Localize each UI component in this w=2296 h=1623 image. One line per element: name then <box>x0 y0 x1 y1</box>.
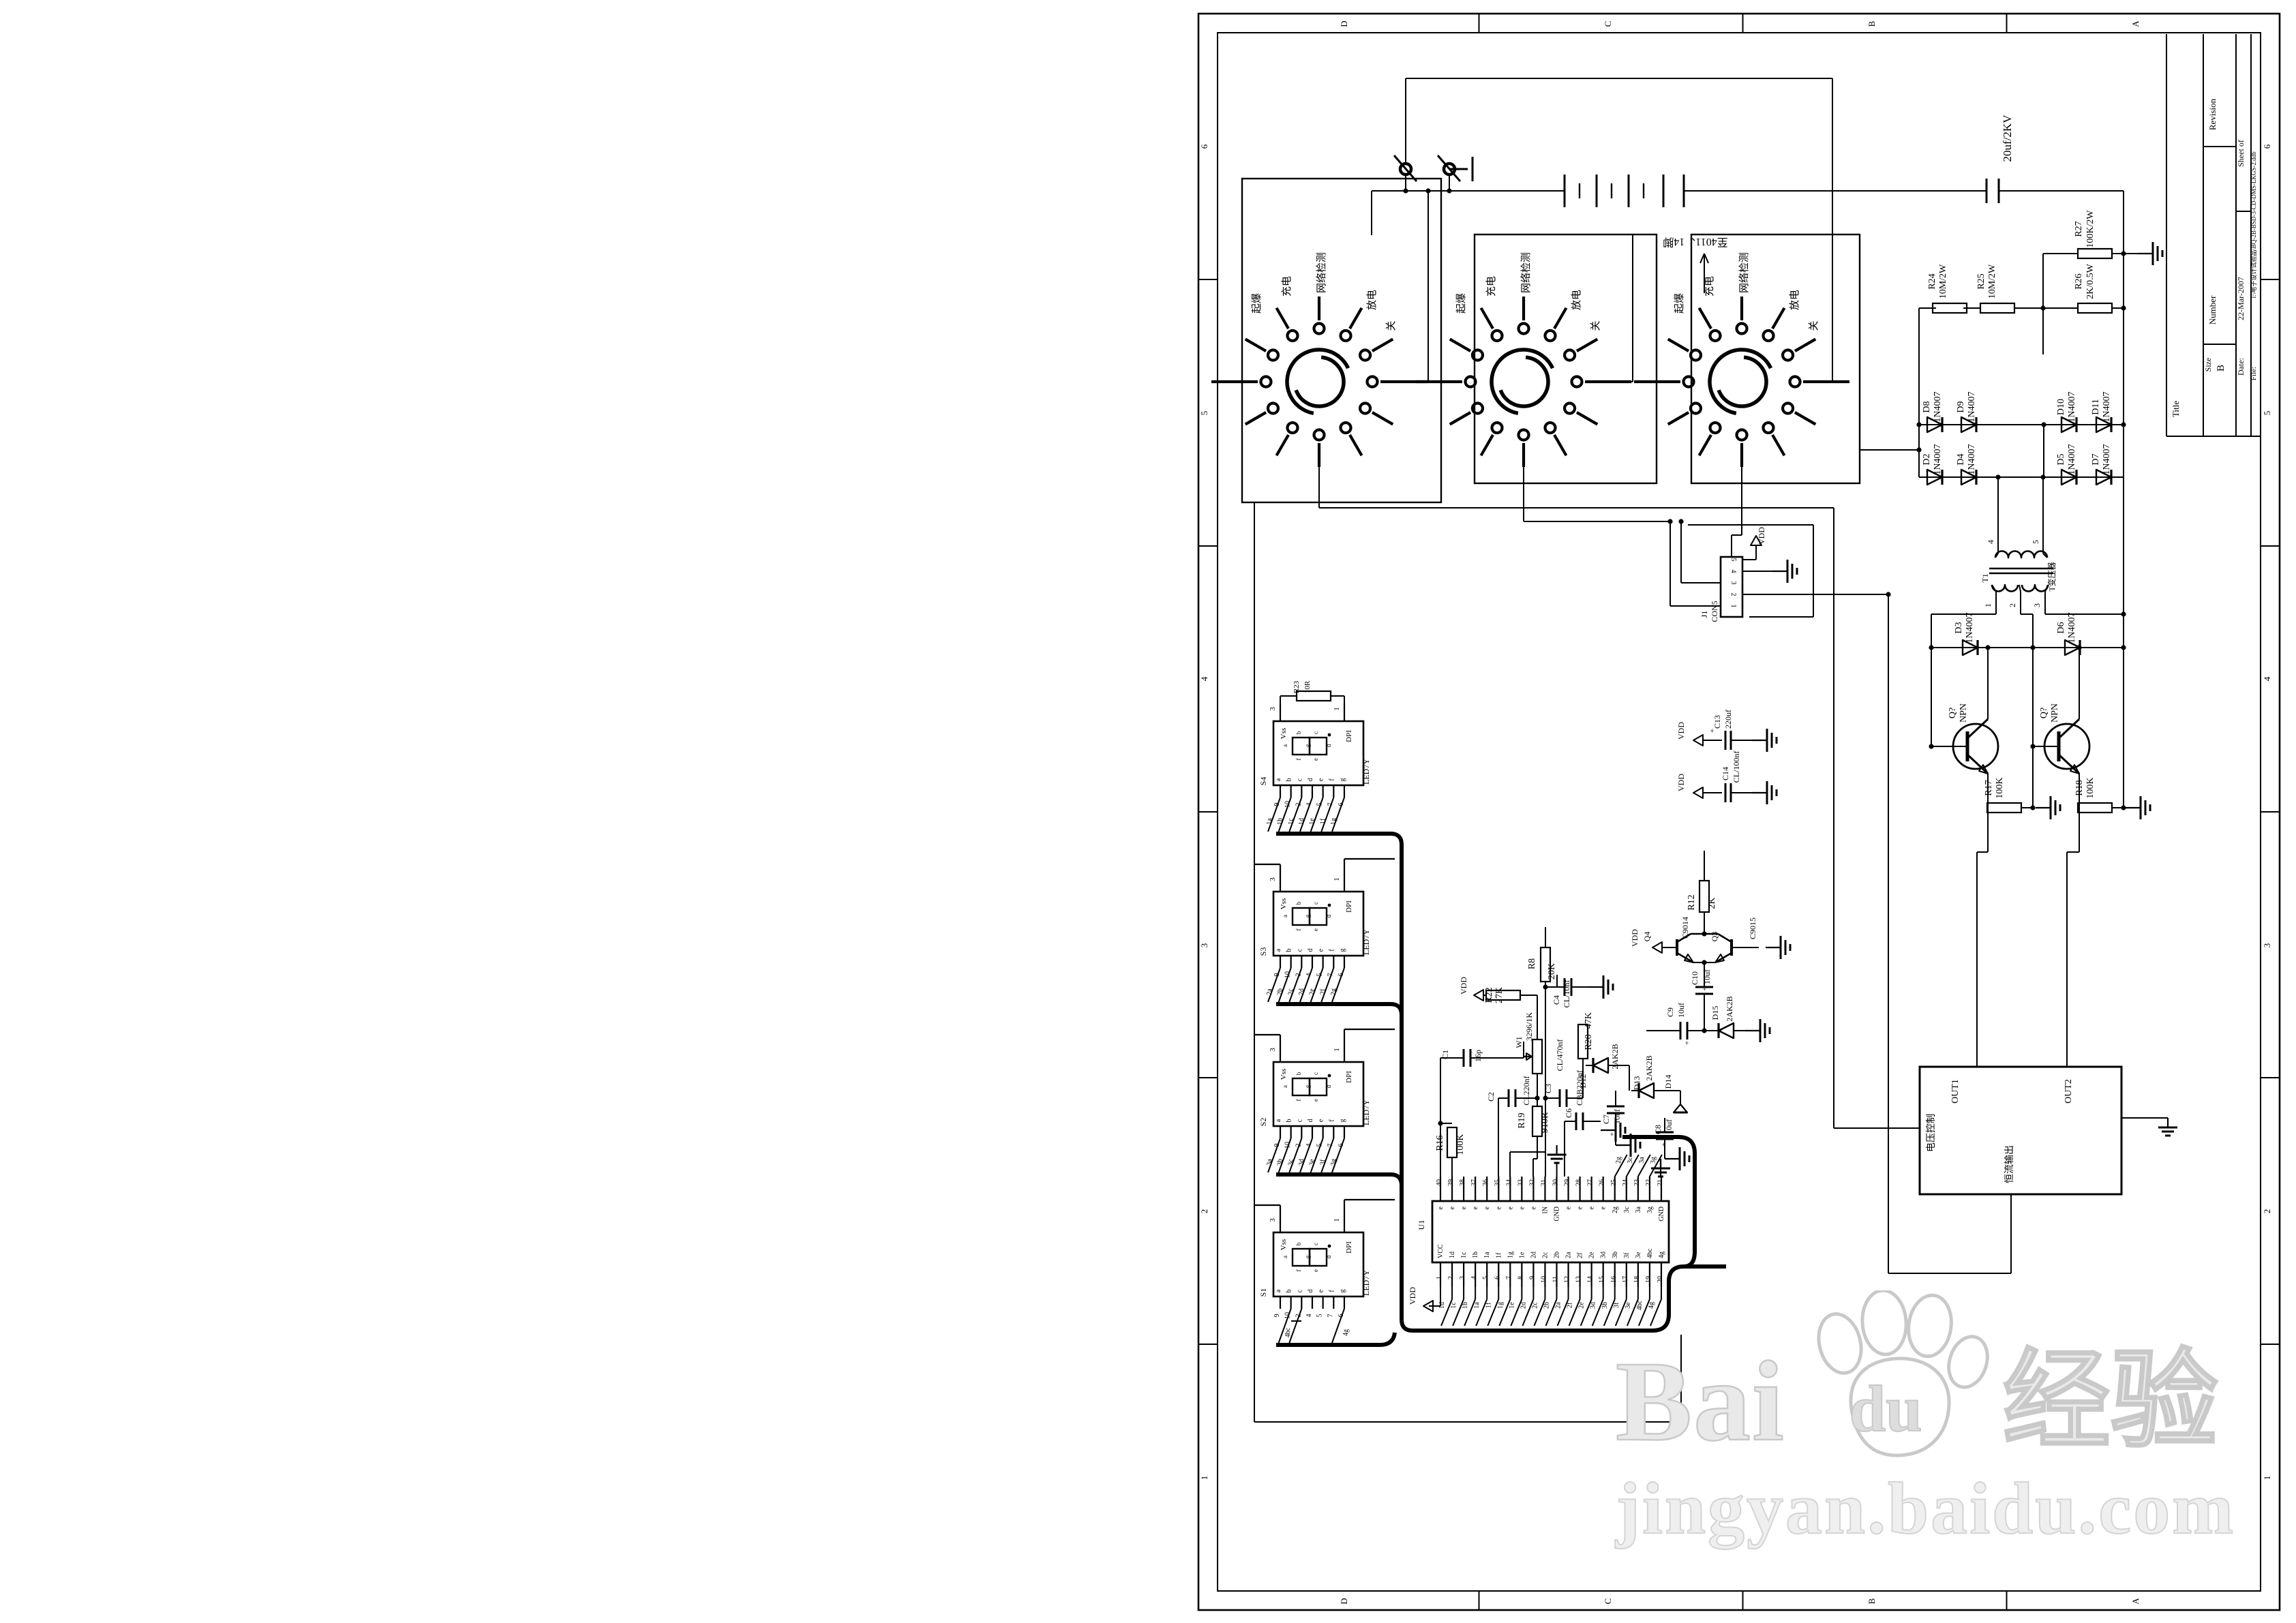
schematic-label: c <box>1312 1072 1319 1075</box>
schematic-label: + <box>1608 1132 1616 1136</box>
schematic-label: Title <box>2171 401 2181 417</box>
schematic-label: 9 <box>1273 1314 1281 1318</box>
schematic-label: D6 <box>2056 622 2066 633</box>
schematic-label: f <box>1328 1290 1335 1292</box>
schematic-label: g <box>1339 949 1346 952</box>
schematic-label: 5 <box>1482 1276 1490 1279</box>
schematic-label: 100K <box>2085 777 2096 798</box>
schematic-label: Q3 <box>1710 932 1719 942</box>
schematic-label: 6 <box>2262 144 2272 149</box>
watermark-du: du <box>1849 1371 1922 1446</box>
schematic-label: 40 <box>1436 1179 1443 1186</box>
schematic-label: C13 <box>1712 715 1722 729</box>
schematic-label: R27 <box>2074 221 2084 237</box>
schematic-label: c <box>1296 1119 1303 1122</box>
schematic-label: e <box>1472 1206 1479 1209</box>
schematic-label: e <box>1483 1206 1491 1209</box>
schematic-label: 4 <box>1305 1314 1313 1318</box>
schematic-label: D13 <box>1632 1076 1642 1091</box>
schematic-label: 1 <box>1333 707 1341 711</box>
schematic-label: 6 <box>1338 973 1345 977</box>
schematic-label: 起爆 <box>1455 293 1467 314</box>
schematic-label: 4 <box>1470 1276 1478 1279</box>
schematic-label: 3d <box>1298 1159 1305 1166</box>
watermark-cn: 经验 <box>2003 1346 2218 1459</box>
schematic-label: D14 <box>1663 1075 1673 1089</box>
schematic-label: 3f <box>1623 1252 1631 1258</box>
schematic-label: C <box>1603 21 1613 27</box>
schematic-label: VDD <box>1459 977 1468 995</box>
schematic-label: e <box>1565 1206 1573 1209</box>
schematic-label: 16 <box>1610 1276 1618 1283</box>
schematic-label: + <box>1707 728 1717 733</box>
schematic-label: 5 <box>1316 973 1324 977</box>
schematic-label: 1a <box>1473 1302 1481 1309</box>
schematic-label: a <box>1282 915 1288 917</box>
schematic-label: 1g <box>1496 1302 1504 1309</box>
schematic-label: 2 <box>2008 603 2017 607</box>
schematic-label: Number <box>2207 295 2218 324</box>
schematic-label: 8 <box>1517 1276 1524 1279</box>
schematic-label: 31 <box>1540 1179 1547 1186</box>
schematic-label: 23 <box>1633 1179 1641 1186</box>
schematic-label: LED7Y <box>1361 759 1371 785</box>
schematic-label: 1 <box>1333 1218 1341 1222</box>
schematic-label: 910R <box>1540 1112 1550 1133</box>
schematic-label: 至4011、14脚 <box>1663 236 1727 248</box>
schematic-label: U1 <box>1417 1220 1426 1230</box>
schematic-label: e <box>1318 1289 1325 1292</box>
schematic-label: VCC <box>1437 1244 1445 1258</box>
schematic-label: g <box>1304 1255 1311 1258</box>
schematic-label: 3 <box>2032 603 2042 607</box>
schematic-label: 39 <box>1447 1179 1455 1186</box>
schematic-label: LED7Y <box>1361 929 1371 955</box>
schematic-label: DPI <box>1345 1241 1353 1254</box>
schematic-label: 3e <box>1635 1252 1642 1258</box>
schematic-label: 9 <box>1528 1276 1536 1279</box>
schematic-label: D7 <box>2091 453 2101 465</box>
schematic-label: 1N4007 <box>2067 612 2077 643</box>
schematic-label: 3 <box>1269 1218 1277 1222</box>
schematic-label: NPN <box>2050 703 2060 723</box>
schematic-label: g <box>1339 1119 1346 1123</box>
schematic-label: 1 <box>1436 1276 1443 1279</box>
schematic-label: 1g <box>1507 1252 1514 1258</box>
schematic-label: C1 <box>1440 1050 1450 1059</box>
schematic-label: f <box>1295 1270 1302 1272</box>
schematic-label: 3a <box>1266 1159 1273 1166</box>
schematic-label: C14 <box>1721 767 1730 780</box>
schematic-label: d <box>1325 1084 1332 1088</box>
schematic-label: 2 <box>2262 1209 2272 1214</box>
schematic-label: e <box>1318 948 1325 952</box>
schematic-label: 3d <box>1600 1252 1607 1258</box>
schematic-label: a <box>1275 1289 1282 1292</box>
schematic-label: VDD <box>1676 722 1686 740</box>
schematic-label: D10 <box>2056 399 2066 415</box>
schematic-label: 放电 <box>1366 290 1378 310</box>
title-block <box>2166 34 2261 436</box>
schematic-label: 2K/0.5W <box>2085 263 2096 299</box>
schematic-label: 2AK2B <box>1610 1044 1620 1069</box>
schematic-label: 起爆 <box>1674 293 1685 314</box>
schematic-label: 14 <box>1587 1276 1595 1283</box>
schematic-label: + <box>1683 1041 1691 1045</box>
schematic-label: 3g <box>1650 1157 1657 1164</box>
schematic-label: 22-Mar-2007 <box>2236 277 2246 320</box>
schematic-label: 3b <box>1277 1159 1284 1166</box>
schematic-label: 1b <box>1462 1302 1469 1309</box>
schematic-label: 充电 <box>1281 276 1293 297</box>
schematic-label: D4 <box>1956 453 1966 465</box>
schematic-label: 4 <box>1729 570 1737 573</box>
schematic-label: 1e <box>1508 1302 1515 1309</box>
schematic-label: a <box>1275 948 1282 952</box>
schematic-label: 1 <box>2262 1476 2272 1481</box>
schematic-label: Vss <box>1280 898 1288 910</box>
schematic-label: 4 <box>2262 676 2272 681</box>
schematic-label: 4bc <box>1646 1248 1654 1258</box>
schematic-label: 17 <box>1622 1276 1629 1283</box>
schematic-label: R12 <box>1687 894 1697 910</box>
schematic-label: 10 <box>1540 1276 1547 1283</box>
schematic-label: Revision <box>2207 98 2218 130</box>
schematic-label: c <box>1312 731 1319 734</box>
schematic-label: 5 <box>2031 540 2040 544</box>
schematic-label: 7 <box>1505 1276 1513 1279</box>
schematic-label: 3e <box>1309 1159 1316 1166</box>
schematic-label: 2d <box>1520 1302 1527 1309</box>
schematic-label: R17 <box>1984 780 1994 795</box>
schematic-label: 47K <box>1584 1012 1594 1029</box>
schematic-label: OUT1 <box>1950 1079 1961 1104</box>
schematic-label: LED7Y <box>1361 1099 1371 1125</box>
schematic-label: 1 <box>1333 877 1341 881</box>
schematic-label: e <box>1312 1099 1319 1102</box>
schematic-label: e <box>1460 1206 1468 1209</box>
schematic-label: 关 <box>1808 320 1819 331</box>
schematic-label: 1N4007 <box>2102 444 2112 474</box>
schematic-label: 1 <box>1729 605 1737 608</box>
schematic-label: e <box>1600 1206 1607 1209</box>
schematic-label: 3 <box>1269 877 1277 881</box>
schematic-label: VDD <box>1676 774 1686 791</box>
schematic-label: 关 <box>1385 320 1397 331</box>
schematic-label: D5 <box>2056 453 2066 465</box>
schematic-label: 4g <box>1658 1252 1665 1258</box>
schematic-label: 3 <box>1269 1048 1277 1052</box>
schematic-label: 2a <box>1565 1252 1573 1258</box>
schematic-label: 20 <box>1657 1276 1664 1283</box>
schematic-label: 3b <box>1612 1252 1619 1258</box>
schematic-label: e <box>1318 1119 1325 1122</box>
schematic-label: I:\电子设计试验品\BQ-2B-BSD-3-CD-DMS-LKGS-2.ddb <box>2250 151 2257 299</box>
schematic-label: a <box>1275 778 1282 781</box>
schematic-label: 1N4007 <box>2067 391 2077 422</box>
schematic-label: 9 <box>1273 973 1281 977</box>
wires <box>1211 78 2177 1422</box>
schematic-label: 1N4007 <box>2102 391 2112 422</box>
schematic-label: 3c <box>1287 1159 1295 1166</box>
schematic-label: 5 <box>1316 1314 1324 1318</box>
schematic-label: D9 <box>1956 401 1966 412</box>
schematic-label: c <box>1296 778 1303 781</box>
watermark-brand: Bai du 经验 <box>1616 1299 2229 1459</box>
schematic-label: T变压器 <box>2046 562 2057 591</box>
schematic-label: e <box>1507 1206 1514 1209</box>
schematic-label: 充电 <box>1704 276 1715 297</box>
schematic-label: 1f <box>1495 1252 1502 1258</box>
schematic-label: g <box>1304 744 1311 747</box>
schematic-label: 37 <box>1470 1179 1478 1186</box>
schematic-label: 34 <box>1505 1179 1513 1186</box>
page-canvas: 至4011、14脚20uf/2KVR27100K/2WR2410M/2WR251… <box>0 0 2296 1623</box>
schematic-label: 5 <box>2262 411 2272 416</box>
schematic-label: C7 <box>1601 1114 1611 1124</box>
schematic-label: d <box>1325 744 1332 747</box>
schematic-label: 30 <box>1552 1179 1560 1186</box>
schematic-label: 2e <box>1309 988 1316 995</box>
schematic-label: CL/470nf <box>1555 1040 1565 1072</box>
schematic-label: GND <box>1658 1207 1665 1222</box>
schematic-label: b <box>1286 778 1293 782</box>
schematic-label: 放电 <box>1789 290 1800 310</box>
schematic-label: 2d <box>1530 1252 1537 1258</box>
watermark-url: jingyan.baidu.com <box>1616 1467 2229 1551</box>
schematic-label: 1f <box>1319 818 1327 824</box>
schematic-label: 38 <box>1459 1179 1466 1186</box>
schematic-label: e <box>1449 1206 1456 1209</box>
schematic-label: 1e <box>1518 1252 1526 1258</box>
schematic-label: 关 <box>1590 320 1601 331</box>
schematic-label: 1a <box>1266 818 1273 825</box>
schematic-label: 3296/1K <box>1524 1012 1534 1041</box>
schematic-label: a <box>1282 744 1288 747</box>
schematic-label: 2c <box>1541 1252 1549 1258</box>
schematic-label: e <box>1530 1206 1537 1209</box>
schematic-label: 2g <box>1330 988 1338 995</box>
schematic-label: b <box>1295 1072 1302 1075</box>
schematic-label: 9 <box>1273 803 1281 806</box>
schematic-label: 25 <box>1610 1179 1618 1186</box>
schematic-label: 26 <box>1599 1179 1606 1186</box>
schematic-label: 2AK2B <box>1725 996 1734 1021</box>
schematic-label: 放电 <box>1571 290 1582 310</box>
schematic-label: 2c <box>1287 988 1295 995</box>
schematic-label: d <box>1307 778 1314 782</box>
schematic-label: 1c <box>1450 1302 1457 1309</box>
schematic-label: a <box>1282 1256 1288 1258</box>
schematic-label: 13 <box>1575 1276 1583 1283</box>
schematic-label: R24 <box>1927 273 1937 289</box>
schematic-label: 2d <box>1298 988 1305 995</box>
schematic-label: b <box>1295 731 1302 734</box>
schematic-label: f <box>1328 949 1335 952</box>
schematic-label: 1N4007 <box>2067 444 2077 474</box>
schematic-label: e <box>1312 1269 1319 1272</box>
schematic-label: 网络检测 <box>1520 252 1532 293</box>
schematic-label: Sheet of <box>2236 140 2246 167</box>
schematic-label: 2f <box>1577 1252 1584 1258</box>
schematic-label: 1c <box>1287 818 1295 825</box>
schematic-label: 2c <box>1531 1302 1539 1309</box>
baidu-paw-icon: du <box>1787 1290 2002 1464</box>
schematic-label: C9015 <box>1748 917 1757 939</box>
schematic-label: a <box>1282 1085 1288 1088</box>
schematic-label: C4 <box>1552 995 1561 1005</box>
schematic-label: 2 <box>1295 1144 1302 1147</box>
schematic-label: 3d <box>1590 1302 1597 1309</box>
schematic-label: 32 <box>1528 1179 1536 1186</box>
schematic-label: 2 <box>1295 973 1302 977</box>
schematic-label: LED7Y <box>1361 1270 1371 1296</box>
schematic-label: VDD <box>1630 929 1640 947</box>
schematic-label: d <box>1325 914 1332 917</box>
schematic-label: 20uf/2KV <box>2001 115 2014 162</box>
schematic-label: 12 <box>1564 1276 1571 1283</box>
schematic-label: Vss <box>1280 728 1288 740</box>
schematic-label: e <box>1312 758 1319 761</box>
schematic-label: 1 <box>1983 603 1993 607</box>
schematic-label: c <box>1312 902 1319 905</box>
schematic-label: 6 <box>1494 1276 1501 1279</box>
schematic-label: 10 <box>1284 971 1292 978</box>
schematic-label: c <box>1296 1289 1303 1292</box>
schematic-label: c <box>1296 948 1303 952</box>
schematic-label: 1d <box>1438 1302 1446 1309</box>
schematic-label: 2b <box>1554 1252 1561 1258</box>
schematic-label: R26 <box>2074 273 2084 289</box>
schematic-label: d <box>1307 1119 1314 1123</box>
schematic-label: R23 <box>1293 680 1301 693</box>
schematic-label: 3a <box>1635 1206 1642 1213</box>
schematic-label: 4 <box>1986 540 1995 544</box>
schematic-label: 5 <box>1316 803 1324 806</box>
schematic-label: Q4 <box>1642 932 1652 942</box>
schematic-label: 1N4007 <box>1965 612 1975 643</box>
schematic-label: 4 <box>1305 1144 1313 1147</box>
schematic-label: D <box>1339 1598 1349 1604</box>
schematic-label: 1 <box>1199 1476 1209 1481</box>
schematic-label: b <box>1286 1119 1293 1123</box>
schematic-label: 10uf <box>1702 969 1712 984</box>
schematic-label: 11 <box>1552 1276 1560 1283</box>
schematic-label: 24 <box>1622 1179 1629 1186</box>
schematic-label: 4 <box>1305 803 1313 806</box>
schematic-label: 6 <box>1199 144 1209 149</box>
schematic-label: e <box>1312 928 1319 931</box>
schematic-label: 36 <box>1482 1179 1490 1186</box>
schematic-label: 1a <box>1483 1252 1491 1258</box>
schematic-label: 2a <box>1266 988 1273 995</box>
schematic-label: J1 <box>1700 611 1709 618</box>
schematic-label: 2e <box>1588 1252 1596 1258</box>
schematic-label: c <box>1312 1243 1319 1245</box>
schematic-label: S4 <box>1258 777 1268 786</box>
schematic-label: f <box>1295 1099 1302 1102</box>
schematic-label: 16p <box>1473 1050 1483 1062</box>
schematic-label: 2K <box>1707 897 1717 909</box>
schematic-label: 2b <box>1543 1302 1551 1309</box>
schematic-label: 20K <box>1547 963 1557 980</box>
schematic-label: Size <box>2203 358 2213 372</box>
schematic-label: R22 <box>1484 987 1494 1003</box>
schematic-label: 9 <box>1273 1144 1281 1147</box>
schematic-label: 2 <box>1295 803 1302 806</box>
schematic-label: 3 <box>1199 943 1209 948</box>
schematic-label: VDD <box>1408 1287 1417 1305</box>
schematic-label: e <box>1518 1206 1526 1209</box>
schematic-label: A <box>2130 20 2141 27</box>
schematic-label: 3 <box>1729 581 1737 585</box>
schematic-label: 7 <box>1327 973 1334 977</box>
schematic-label: e <box>1318 778 1325 781</box>
schematic-label: 2 <box>1447 1276 1455 1279</box>
schematic-label: C <box>1603 1598 1613 1605</box>
schematic-label: 10M/2W <box>1938 264 1948 299</box>
schematic-label: Q? <box>2039 708 2049 718</box>
schematic-label: Date: <box>2236 358 2246 376</box>
schematic-label: b <box>1295 1242 1302 1245</box>
schematic-label: 3c <box>1627 1157 1634 1164</box>
schematic-label: 7 <box>1327 803 1334 806</box>
schematic-label: 1b <box>1277 818 1284 825</box>
schematic-label: 1d <box>1449 1252 1456 1258</box>
schematic-label: d <box>1307 1290 1314 1293</box>
schematic-label: 4 <box>1305 973 1313 977</box>
schematic-label: 3 <box>1459 1276 1466 1279</box>
schematic-label: C2 <box>1486 1092 1496 1102</box>
schematic-label: 1N4007 <box>1933 391 1943 422</box>
schematic-label: D15 <box>1710 1006 1720 1020</box>
schematic-label: R20 <box>1584 1034 1594 1050</box>
schematic-label: 21 <box>1657 1179 1664 1186</box>
schematic-label: 3 <box>1269 707 1277 711</box>
schematic-label: + <box>1701 987 1709 991</box>
schematic-label: D11 <box>2091 399 2101 415</box>
schematic-label: A <box>2130 1598 2141 1605</box>
schematic-label: 19 <box>1645 1276 1652 1283</box>
schematic-label: DPI <box>1345 900 1353 913</box>
schematic-label: D3 <box>1954 622 1964 633</box>
schematic-label: NPN <box>1959 703 1969 723</box>
schematic-label: R25 <box>1976 273 1987 289</box>
schematic-label: C6 <box>1564 1108 1573 1118</box>
schematic-label: R16 <box>1435 1135 1445 1151</box>
schematic-label: 2f <box>1567 1302 1574 1308</box>
schematic-label: 100K <box>1995 777 2005 798</box>
schematic-label: CL220nf <box>1522 1076 1531 1105</box>
schematic-label: 1d <box>1298 818 1305 825</box>
schematic-label: 220uf <box>1723 710 1733 729</box>
watermark-bai: Bai <box>1616 1344 1785 1459</box>
schematic-label: 10uf <box>1612 1109 1622 1124</box>
schematic-label: 10 <box>1284 1312 1292 1319</box>
schematic-label: 22 <box>1645 1179 1652 1186</box>
schematic-label: 6 <box>1338 803 1345 806</box>
schematic-label: 10R <box>1303 680 1312 693</box>
schematic-label: IN <box>1541 1207 1549 1214</box>
schematic-label: 起爆 <box>1251 293 1263 314</box>
schematic-label: D12 <box>1578 1074 1588 1089</box>
schematic-label: 7 <box>1327 1144 1334 1147</box>
schematic-label: 2a <box>1555 1302 1562 1309</box>
schematic-label: 1f <box>1485 1302 1492 1308</box>
schematic-label: f <box>1328 778 1335 781</box>
schematic-label: 100K/2W <box>2085 210 2096 248</box>
schematic-label: b <box>1286 949 1293 952</box>
